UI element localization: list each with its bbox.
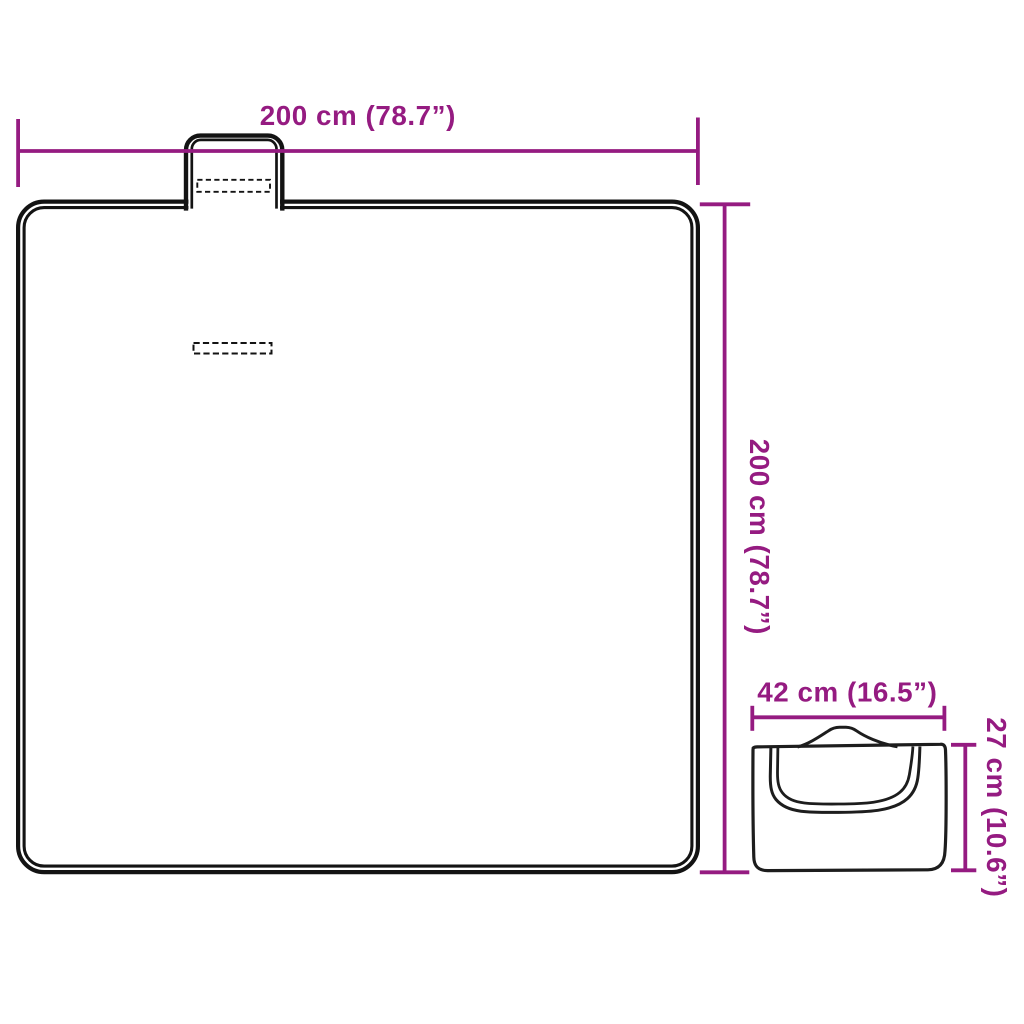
svg-text:200 cm (78.7”): 200 cm (78.7”) <box>744 439 775 635</box>
svg-text:42 cm (16.5”): 42 cm (16.5”) <box>757 677 937 708</box>
svg-text:27 cm (10.6”): 27 cm (10.6”) <box>981 717 1012 897</box>
svg-text:200 cm (78.7”): 200 cm (78.7”) <box>260 100 456 131</box>
